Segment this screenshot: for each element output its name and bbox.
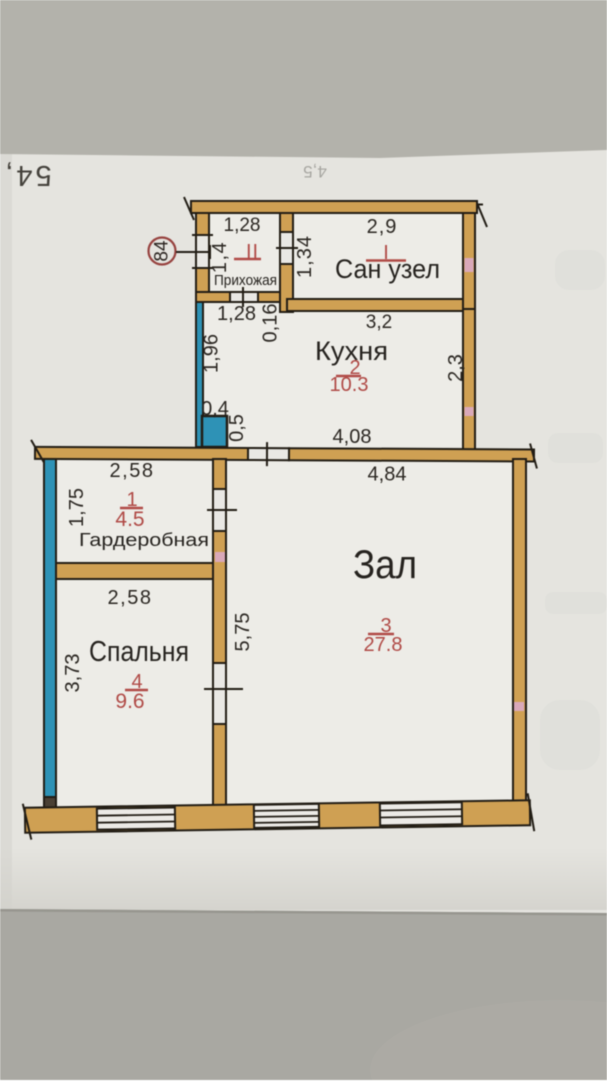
svg-text:2,9: 2,9 [367, 216, 398, 238]
svg-text:4,08: 4,08 [333, 426, 372, 448]
svg-text:1,34: 1,34 [294, 235, 316, 278]
svg-text:27.8: 27.8 [364, 634, 403, 656]
svg-text:10.3: 10.3 [330, 374, 369, 396]
svg-text:1,28: 1,28 [224, 215, 261, 236]
svg-text:54,: 54, [2, 159, 51, 191]
svg-text:4.5: 4.5 [115, 508, 144, 531]
svg-text:Гардеробная: Гардеробная [79, 529, 209, 550]
svg-text:Зал: Зал [353, 543, 417, 587]
svg-text:Спальня: Спальня [89, 636, 189, 668]
svg-text:5,75: 5,75 [232, 613, 254, 652]
svg-text:0,5: 0,5 [226, 414, 248, 442]
svg-text:4,5: 4,5 [303, 162, 327, 181]
svg-text:3,2: 3,2 [366, 312, 392, 333]
svg-text:4,84: 4,84 [368, 464, 407, 486]
svg-text:0,16: 0,16 [260, 304, 282, 343]
svg-text:3,73: 3,73 [62, 654, 84, 693]
svg-text:1,96: 1,96 [201, 334, 223, 373]
svg-text:1,75: 1,75 [66, 488, 88, 527]
svg-text:2,3: 2,3 [445, 354, 467, 382]
svg-text:2,58: 2,58 [108, 587, 153, 609]
svg-text:0,4: 0,4 [201, 398, 229, 420]
svg-text:84: 84 [152, 240, 173, 262]
svg-text:1,4: 1,4 [209, 241, 231, 273]
svg-text:9.6: 9.6 [115, 690, 144, 713]
svg-text:2,58: 2,58 [110, 460, 155, 482]
svg-text:1,28: 1,28 [217, 303, 256, 325]
svg-text:Прихожая: Прихожая [214, 273, 277, 289]
